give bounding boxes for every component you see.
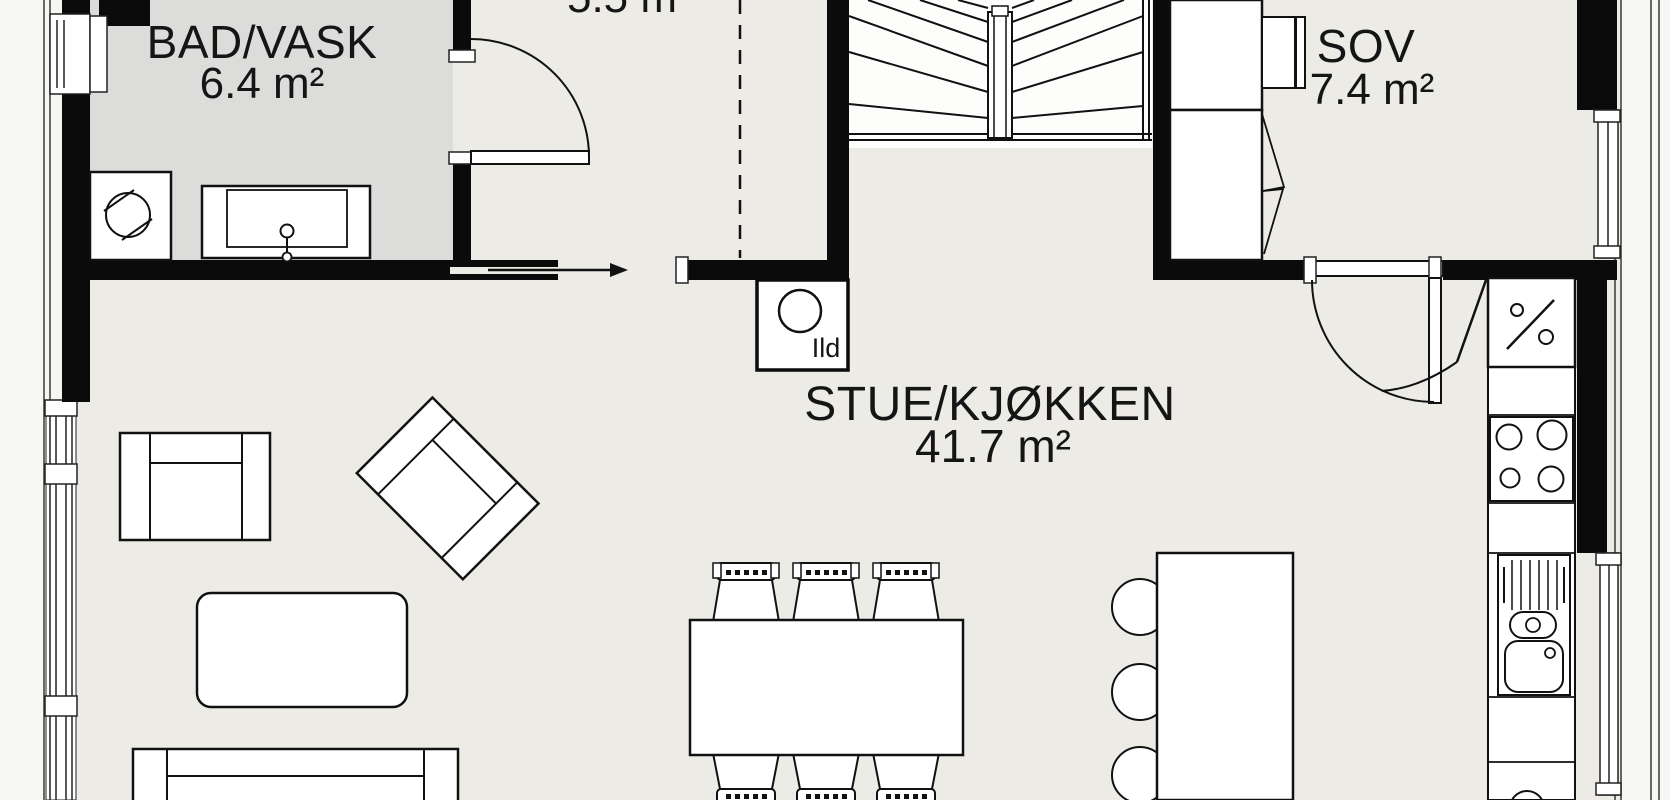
- faucet-icon: [281, 225, 294, 238]
- bedroom-headboard-unit: [1262, 17, 1305, 88]
- dining-chair: [713, 753, 779, 800]
- fireplace: Ild: [757, 280, 848, 370]
- bathroom-vanity-sink: [202, 186, 370, 262]
- faucet-icon: [1510, 612, 1556, 638]
- window-bathroom-left: [50, 14, 107, 94]
- dining-chairs-bottom: [713, 753, 939, 800]
- coffee-table: [197, 593, 407, 707]
- sink-basin: [1505, 641, 1563, 692]
- kitchen-sink: [1498, 555, 1570, 695]
- floor-plan: Ild: [0, 0, 1670, 800]
- dining-chair: [713, 563, 779, 622]
- dining-chair: [873, 753, 939, 800]
- cooktop: [1490, 417, 1573, 501]
- window-bedroom-right: [1594, 110, 1620, 258]
- armchair-1: [120, 433, 270, 540]
- sofa: [133, 749, 458, 800]
- window-kitchen-right: [1596, 553, 1621, 795]
- dining-chair: [873, 563, 939, 622]
- window-left-living: [45, 400, 77, 800]
- dining-table: [690, 620, 963, 755]
- dining-chair: [793, 753, 859, 800]
- room-area-hallway-clipped: 5.5 m: [567, 0, 677, 22]
- floor-plan-canvas: Ild: [0, 0, 1670, 800]
- fireplace-label: Ild: [812, 333, 841, 363]
- newel-post-cap: [992, 6, 1008, 16]
- kitchen-counter: [1488, 278, 1575, 800]
- room-area-bedroom: 7.4 m²: [1310, 65, 1435, 114]
- washing-machine: [90, 172, 171, 260]
- dining-chairs-top: [713, 563, 939, 622]
- dining-chair: [793, 563, 859, 622]
- kitchen-island: [1157, 553, 1293, 800]
- room-area-bathroom: 6.4 m²: [200, 59, 325, 108]
- room-area-living-kitchen: 41.7 m²: [915, 420, 1071, 472]
